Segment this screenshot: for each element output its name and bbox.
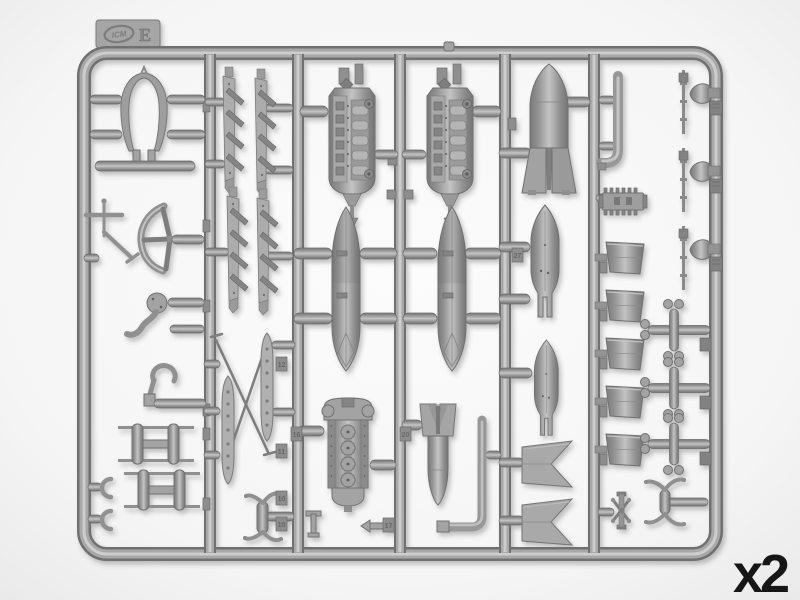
rod-and-spinner-parts bbox=[679, 70, 722, 290]
part-number-tab: 16 bbox=[293, 432, 301, 439]
part-number-tab: 27 bbox=[514, 253, 522, 260]
part-number-tab: 17 bbox=[385, 523, 393, 530]
drop-tank-part bbox=[438, 207, 466, 371]
part-number-tab: 10 bbox=[278, 496, 286, 503]
part-number-tab: 10 bbox=[278, 522, 286, 529]
part-number-tab: 20 bbox=[402, 432, 410, 439]
sprue-canvas: x2 ICM E bbox=[0, 0, 800, 600]
float-strut-part bbox=[261, 333, 273, 441]
knob-cross-parts bbox=[641, 300, 712, 475]
sprue-letter: E bbox=[139, 25, 151, 45]
sprue-id-tag: ICM E bbox=[96, 20, 160, 48]
float-strut-part bbox=[222, 376, 234, 484]
model-kit-sprue-photo: x2 ICM E bbox=[0, 0, 800, 600]
drop-tank-part bbox=[332, 207, 360, 371]
part-number-tab: 12 bbox=[278, 362, 286, 369]
gate-nub bbox=[444, 42, 454, 51]
quantity-label: x2 bbox=[733, 544, 788, 600]
part-number-tab: 11 bbox=[278, 449, 286, 456]
